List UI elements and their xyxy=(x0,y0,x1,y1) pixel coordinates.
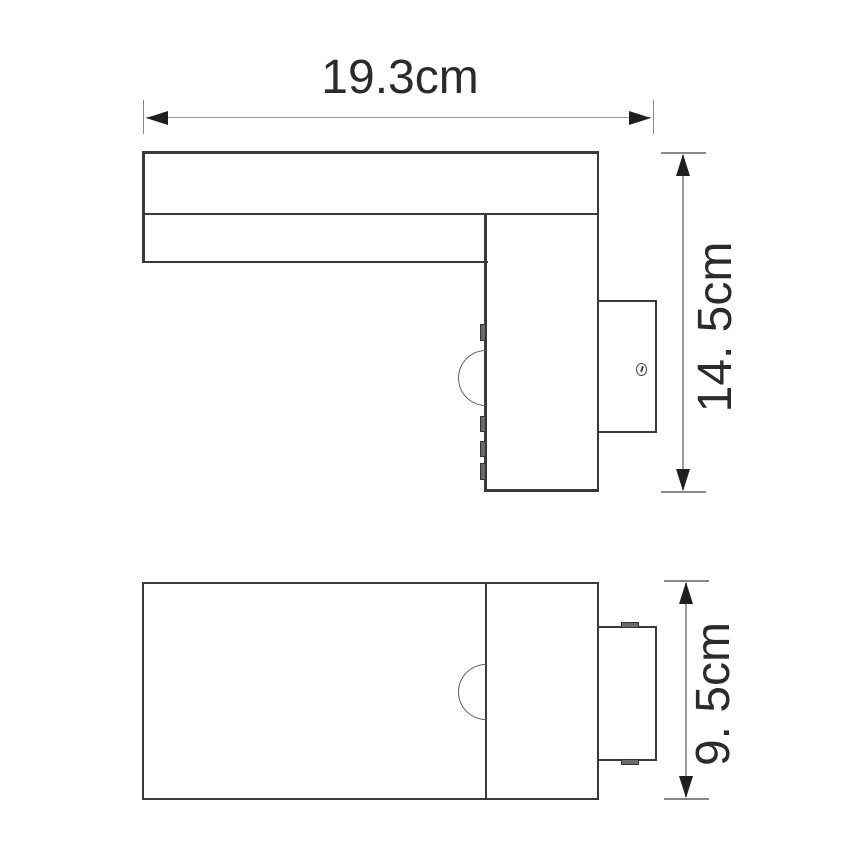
width-dimension-label: 19.3cm xyxy=(250,54,550,102)
width-extension-tick-left xyxy=(143,100,145,134)
height-dimension-label: 14. 5cm xyxy=(692,177,740,477)
height-extension-tick-bottom xyxy=(661,491,706,493)
right-arrowhead-icon xyxy=(629,111,651,125)
left-arrowhead-icon xyxy=(146,111,168,125)
front-wall-bracket xyxy=(597,626,657,761)
side-top-edge xyxy=(142,151,599,154)
side-bar-bottom-edge xyxy=(142,213,599,216)
mounting-tab xyxy=(480,463,486,480)
bracket-clip xyxy=(621,759,639,765)
side-body-bottom-edge xyxy=(484,489,599,492)
height-dimension-line xyxy=(682,155,684,490)
depth-dimension-label: 9. 5cm xyxy=(690,544,738,844)
screw-icon xyxy=(636,363,647,376)
mounting-tab xyxy=(480,416,486,432)
side-left-edge xyxy=(142,151,145,263)
side-arm-bottom-edge xyxy=(142,261,488,264)
motion-sensor-dome xyxy=(458,350,486,406)
mounting-tab xyxy=(480,324,486,341)
dimension-drawing: 19.3cm 14. 5cm 9. 5cm xyxy=(0,0,868,868)
mounting-tab xyxy=(480,441,486,457)
side-wall-bracket xyxy=(597,300,657,433)
width-extension-tick-right xyxy=(653,100,655,134)
bracket-clip xyxy=(621,622,639,628)
down-arrowhead-icon xyxy=(676,469,690,491)
up-arrowhead-icon xyxy=(676,154,690,176)
width-dimension-line xyxy=(146,117,651,119)
front-body xyxy=(142,582,599,800)
